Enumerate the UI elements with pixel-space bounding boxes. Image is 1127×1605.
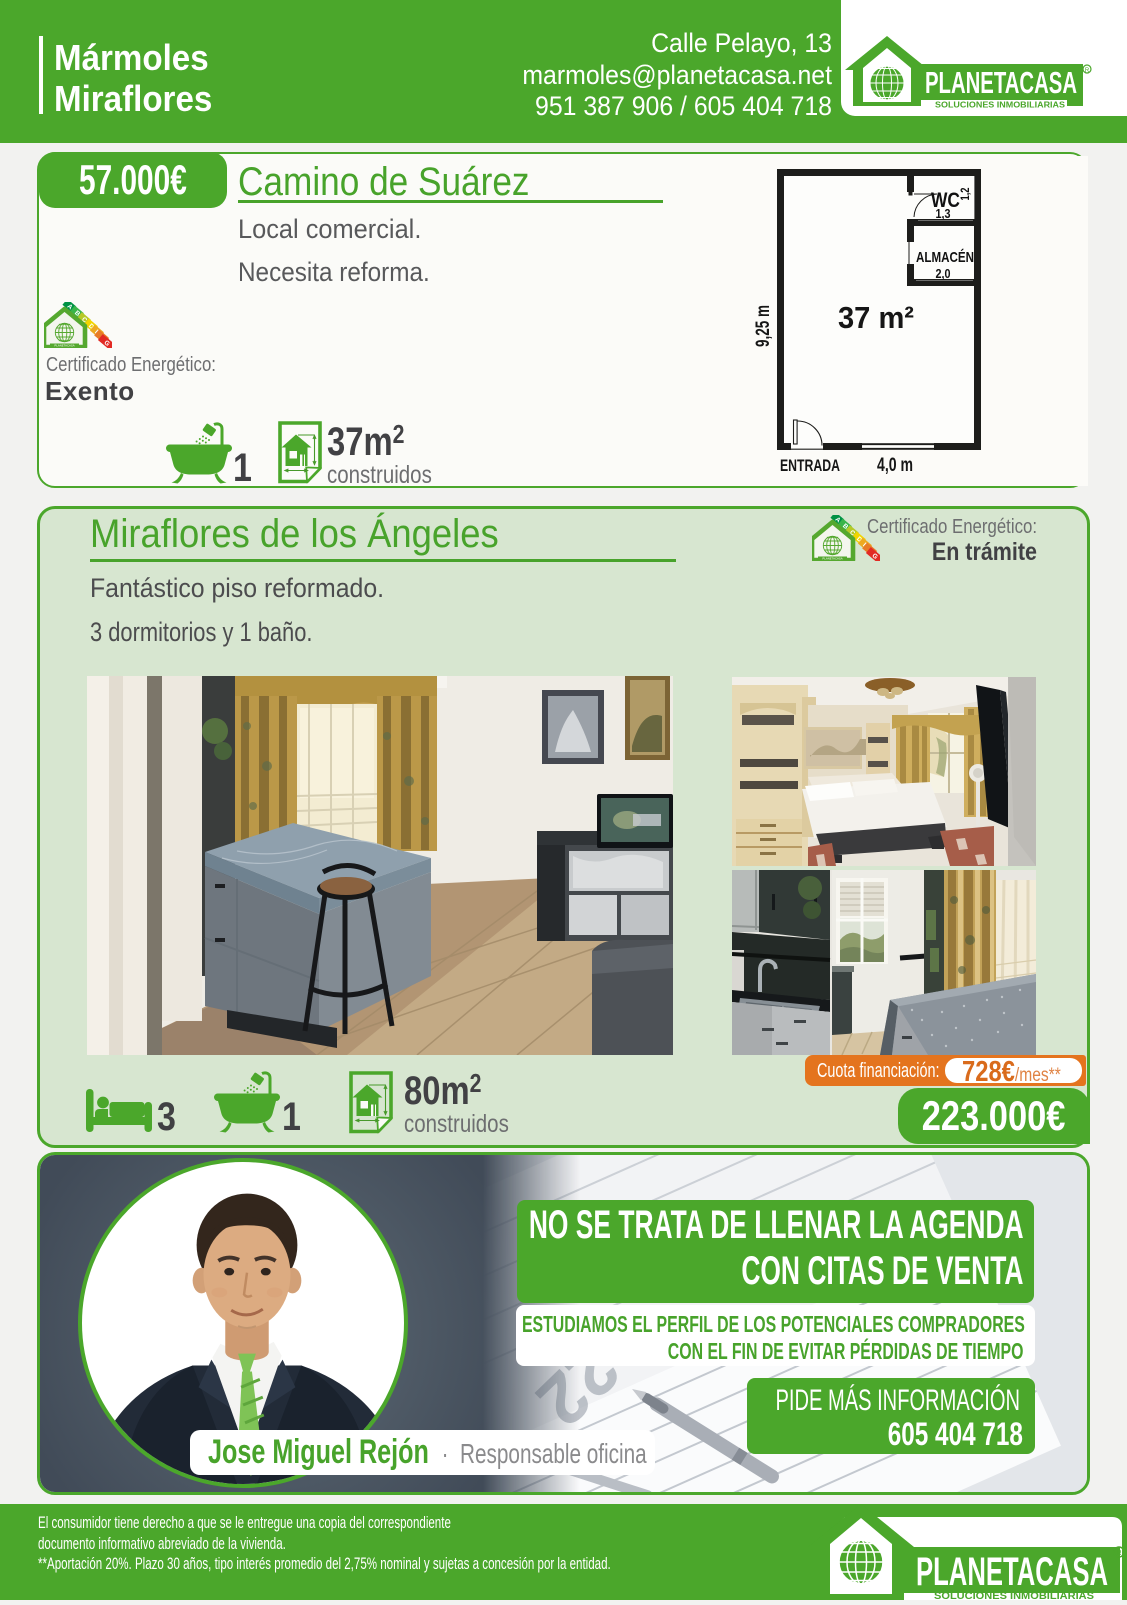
svg-text:SOLUCIONES INMOBILIARIAS: SOLUCIONES INMOBILIARIAS: [934, 1591, 1094, 1600]
svg-text:37 m²: 37 m²: [838, 300, 914, 335]
svg-text:1,3: 1,3: [936, 206, 951, 221]
svg-text:SOLUCIONES INMOBILIARIAS: SOLUCIONES INMOBILIARIAS: [935, 100, 1065, 110]
svg-text:2,0: 2,0: [936, 266, 951, 281]
svg-text:9,25 m: 9,25 m: [753, 305, 774, 347]
svg-text:ALMACÉN: ALMACÉN: [916, 249, 974, 266]
svg-text:PLANETACASA: PLANETACASA: [916, 1550, 1108, 1594]
svg-text:ENTRADA: ENTRADA: [780, 457, 840, 475]
svg-text:1,2: 1,2: [958, 187, 972, 200]
svg-text:R: R: [1116, 1550, 1121, 1557]
svg-text:4,0 m: 4,0 m: [877, 455, 913, 476]
svg-text:PLANETACASA: PLANETACASA: [925, 65, 1077, 100]
svg-text:PLANETACASA: PLANETACASA: [54, 343, 74, 347]
svg-text:R: R: [1085, 68, 1090, 74]
